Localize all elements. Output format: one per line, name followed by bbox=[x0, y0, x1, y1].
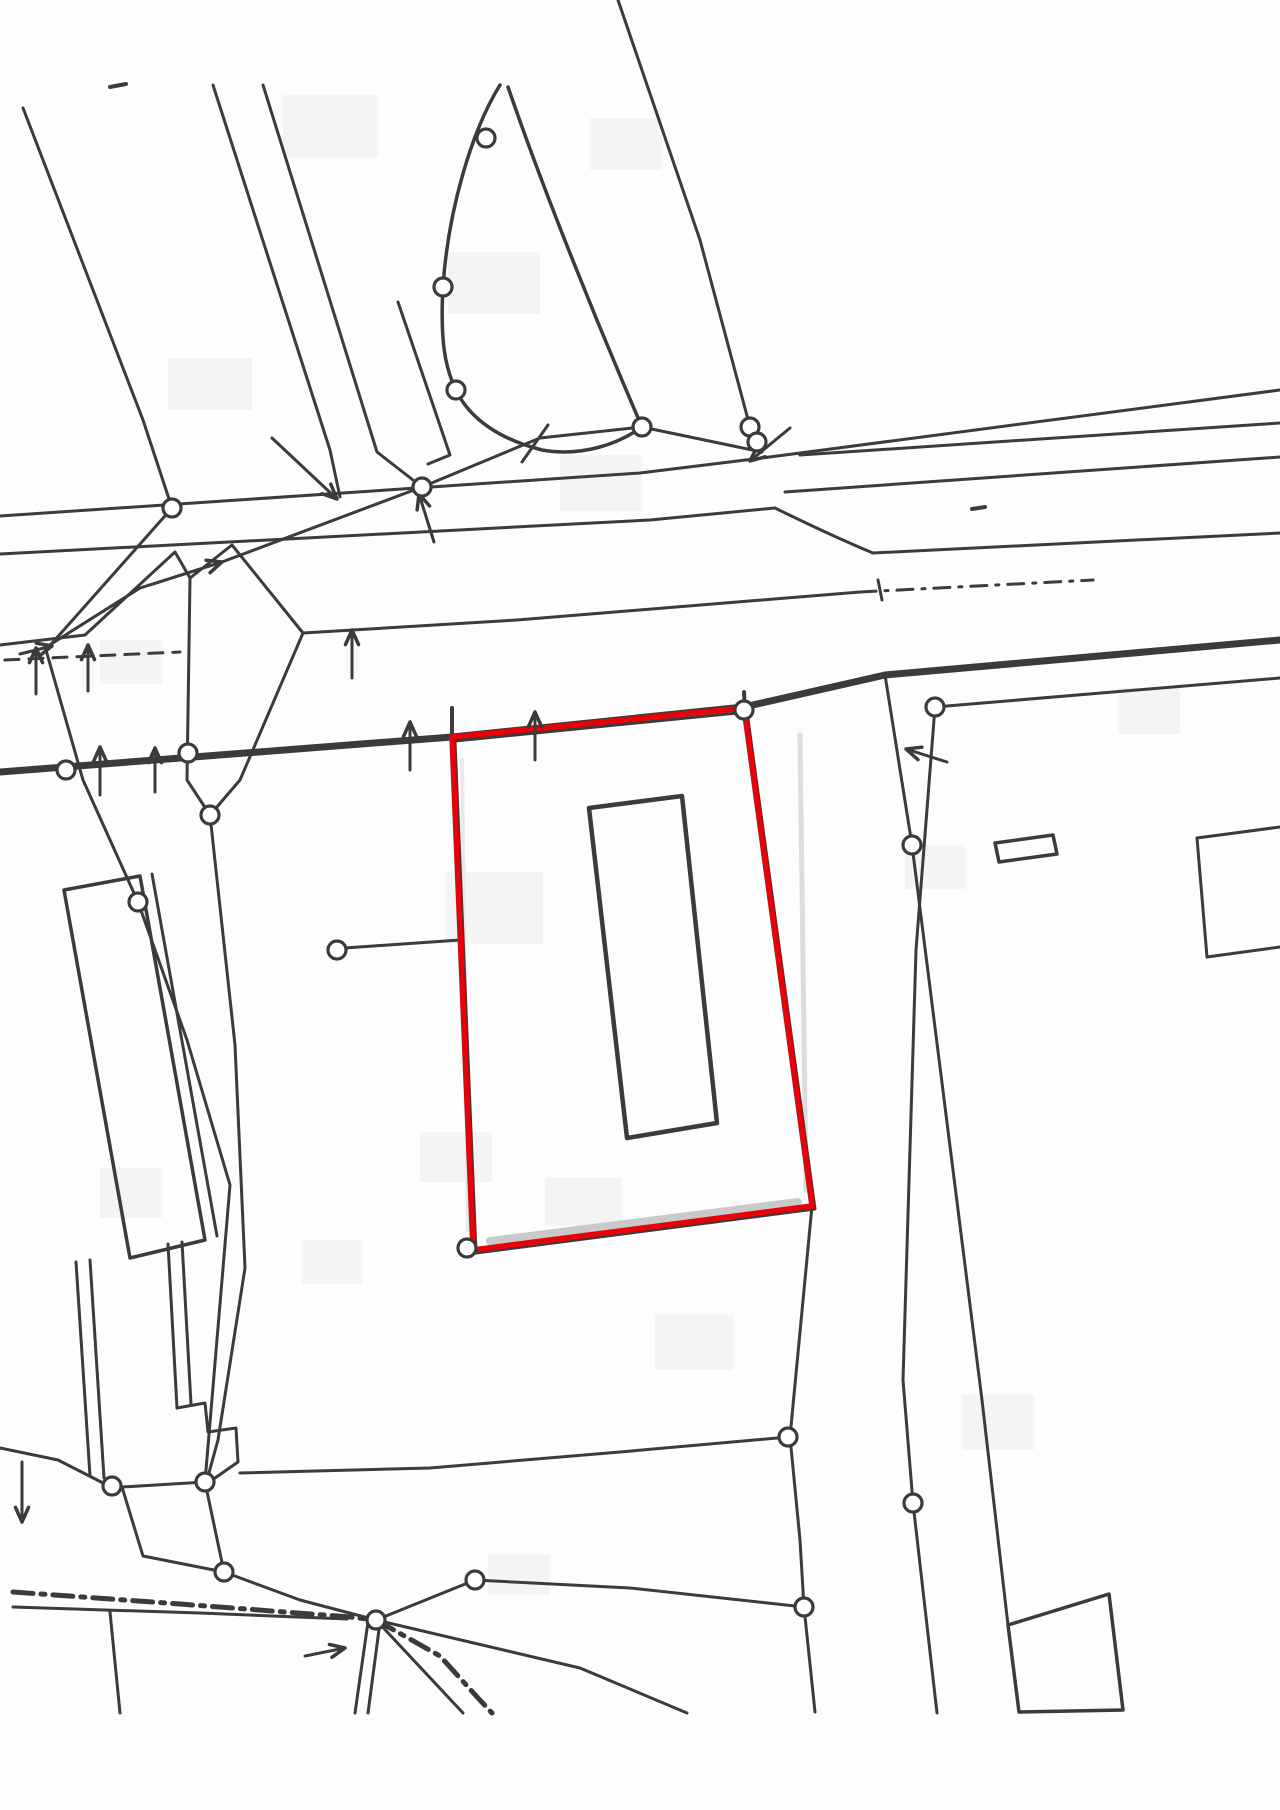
survey-point-marker bbox=[447, 381, 465, 399]
survey-point-marker bbox=[413, 478, 431, 496]
survey-point-marker bbox=[466, 1571, 484, 1589]
scan-blotch bbox=[590, 118, 662, 170]
boundary-curve bbox=[775, 508, 873, 553]
parcel-layer bbox=[452, 708, 815, 1253]
survey-point-marker bbox=[57, 761, 75, 779]
boundary-line bbox=[1197, 838, 1207, 957]
arrow-shaft bbox=[272, 438, 337, 499]
boundary-line bbox=[182, 1242, 191, 1404]
scan-blotch bbox=[488, 1555, 550, 1595]
survey-point-marker bbox=[748, 433, 766, 451]
cadastral-map-page bbox=[0, 0, 1280, 1810]
direction-arrow-icon bbox=[81, 645, 94, 691]
direction-arrow-icon bbox=[305, 1644, 345, 1657]
scan-artifacts-layer bbox=[100, 95, 1180, 1595]
survey-point-marker bbox=[779, 1428, 797, 1446]
boundary-line bbox=[210, 633, 303, 815]
boundary-line bbox=[368, 1622, 380, 1713]
survey-point-marker bbox=[633, 418, 651, 436]
survey-point-marker bbox=[367, 1611, 385, 1629]
boundary-line bbox=[345, 940, 460, 948]
boundary-line bbox=[205, 1482, 224, 1572]
survey-point-marker bbox=[328, 941, 346, 959]
survey-point-marker bbox=[904, 1494, 922, 1512]
scan-blotch bbox=[302, 1240, 362, 1284]
survey-point-marker bbox=[179, 744, 197, 762]
boundary-line bbox=[790, 1206, 815, 1712]
boundary-line bbox=[46, 508, 172, 650]
boundary-line bbox=[885, 675, 1008, 1625]
survey-point-marker bbox=[196, 1473, 214, 1491]
boundary-line bbox=[355, 1622, 368, 1713]
boundary-line bbox=[76, 1262, 90, 1476]
boundary-line bbox=[935, 678, 1280, 707]
survey-point-marker bbox=[163, 499, 181, 517]
boundary-line bbox=[0, 508, 775, 554]
scan-blotch bbox=[100, 640, 162, 684]
boundary-line bbox=[785, 457, 1280, 492]
boundary-line bbox=[122, 1487, 376, 1620]
boundary-line bbox=[1197, 827, 1280, 838]
boundary-line bbox=[168, 1244, 177, 1408]
boundary-line bbox=[240, 1437, 788, 1473]
direction-arrow-icon bbox=[417, 494, 434, 542]
boundary-line bbox=[376, 1620, 687, 1713]
direction-arrow-icon bbox=[906, 747, 947, 762]
direction-arrow-icon bbox=[272, 438, 337, 499]
scan-blotch bbox=[545, 1178, 621, 1226]
boundary-line bbox=[90, 1260, 104, 1478]
parcel-boundary bbox=[455, 712, 815, 1253]
survey-point-marker bbox=[735, 701, 753, 719]
direction-arrow-icon bbox=[93, 747, 106, 795]
scan-shadow-layer bbox=[462, 735, 806, 1241]
survey-point-marker bbox=[129, 893, 147, 911]
direction-arrow-icon bbox=[528, 712, 541, 760]
small-marker-rect bbox=[995, 835, 1057, 862]
scan-blotch bbox=[1118, 688, 1180, 734]
survey-point-marker bbox=[215, 1563, 233, 1581]
direction-arrow-icon bbox=[15, 1462, 28, 1522]
direction-arrow-icon bbox=[148, 748, 161, 792]
scan-blotch bbox=[962, 1395, 1034, 1450]
scan-shadow-line bbox=[490, 1202, 798, 1241]
scan-blotch bbox=[448, 252, 540, 314]
scan-blotch bbox=[100, 1168, 162, 1218]
inner-building bbox=[589, 796, 717, 1138]
scan-blotch bbox=[283, 95, 378, 157]
cadastral-map-canvas bbox=[0, 0, 1280, 1810]
survey-point-marker bbox=[926, 698, 944, 716]
boundary-line bbox=[110, 1612, 120, 1713]
boundary-line bbox=[376, 1580, 804, 1620]
survey-point-marker bbox=[201, 806, 219, 824]
boundary-line bbox=[800, 423, 1280, 455]
boundary-line bbox=[878, 580, 882, 600]
boundary-line bbox=[110, 84, 126, 87]
boundary-line bbox=[873, 533, 1280, 553]
linework-layer bbox=[0, 0, 1280, 1713]
survey-point-marker bbox=[477, 129, 495, 147]
scan-blotch bbox=[655, 1315, 733, 1370]
direction-arrow-icon bbox=[345, 630, 358, 678]
scan-blotch bbox=[168, 358, 252, 410]
scan-blotch bbox=[560, 455, 642, 511]
boundary-line bbox=[618, 0, 762, 452]
boundary-line bbox=[860, 580, 1093, 592]
survey-point-marker bbox=[903, 836, 921, 854]
bottom-right-structure bbox=[1008, 1594, 1123, 1712]
survey-point-marker bbox=[434, 278, 452, 296]
direction-arrow-icon bbox=[403, 722, 416, 770]
boundary-line bbox=[1207, 947, 1280, 957]
boundary-line bbox=[972, 507, 985, 509]
survey-point-marker bbox=[795, 1598, 813, 1616]
arrows-layer bbox=[15, 428, 947, 1657]
scan-blotch bbox=[420, 1132, 492, 1182]
survey-point-marker bbox=[103, 1477, 121, 1495]
boundary-line bbox=[23, 108, 172, 508]
survey-point-marker bbox=[458, 1239, 476, 1257]
